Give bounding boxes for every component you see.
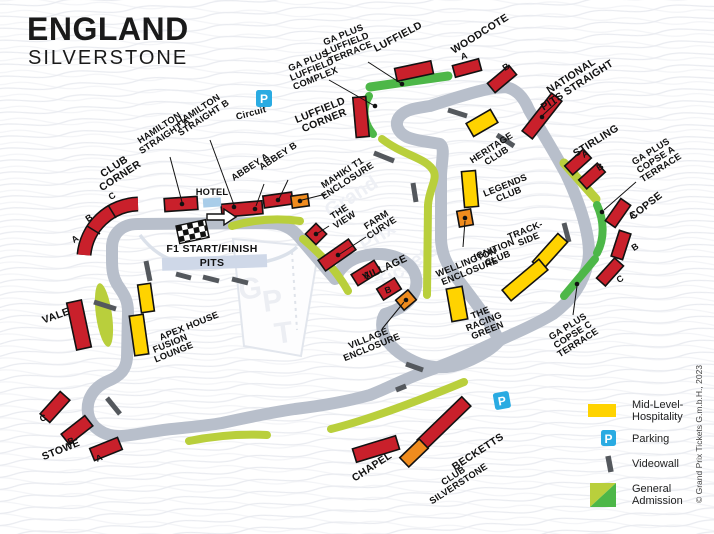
hospitality-apex-house[interactable] [138, 283, 155, 313]
legend-general-admission-swatch [590, 483, 616, 507]
legend-parking-label: Parking [632, 433, 669, 445]
legend-general-label-2: Admission [632, 495, 683, 507]
label-hotel: HOTEL [196, 187, 229, 197]
svg-text:P: P [604, 432, 612, 446]
label-f1-start-finish: F1 START/FINISH [166, 243, 257, 255]
videowall-icon [413, 183, 416, 202]
label-pits: PITS [200, 257, 225, 269]
parking-becketts: P [493, 391, 512, 411]
legend-hospitality-swatch [588, 404, 616, 417]
copyright-text: © Grand Prix Tickets G.m.b.H., 2023 [694, 365, 704, 503]
legend-general-label-1: General [632, 483, 671, 495]
page-title-circuit: SILVERSTONE [28, 47, 188, 69]
page-title-country: ENGLAND [27, 11, 189, 47]
legend-parking-icon: P [601, 430, 616, 446]
circuit-map-page: G P T Grand Prix Tickets [0, 0, 714, 534]
hospitality-legends-club[interactable] [461, 170, 478, 207]
hotel-building [203, 197, 222, 207]
grandstand-luffield-corner[interactable] [353, 97, 369, 138]
parking-icon: P [260, 92, 268, 106]
legend-hospitality-label-2: Hospitality [632, 411, 683, 423]
legend-videowall-icon [608, 456, 611, 472]
silverstone-map: G P T Grand Prix Tickets [0, 0, 714, 534]
legend-videowall-label: Videowall [632, 458, 679, 470]
parking-circuit: P [256, 90, 272, 107]
legend-hospitality-label-1: Mid-Level- [632, 399, 684, 411]
